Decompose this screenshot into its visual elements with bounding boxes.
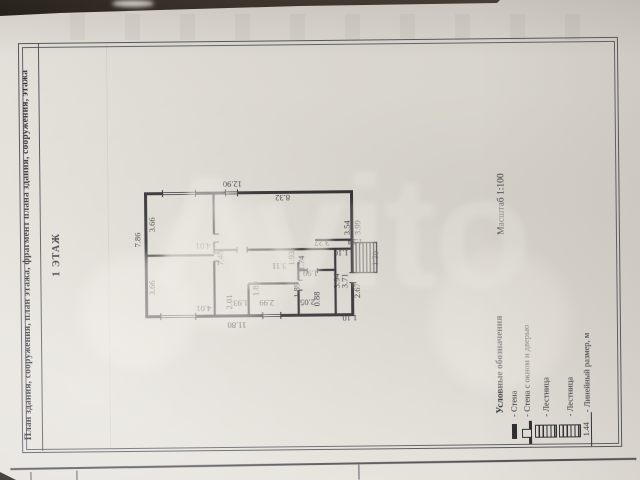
legend-items: - Стена- Стена с окном и дверью- Лестниц… bbox=[507, 281, 592, 447]
floor-plan-drawing bbox=[129, 184, 391, 337]
inner-walls bbox=[146, 192, 353, 317]
legend-item-label: - Лестница bbox=[564, 377, 574, 417]
legend-item: 1.44- Линейный размер, м bbox=[580, 281, 592, 446]
legend: Условные обозначения - Стена- Стена с ок… bbox=[494, 281, 621, 447]
stairs-icon bbox=[558, 416, 580, 446]
next-section-border bbox=[10, 458, 636, 470]
legend-title: Условные обозначения bbox=[494, 282, 506, 447]
next-section-divider-a bbox=[76, 471, 77, 480]
wall-icon bbox=[511, 417, 516, 447]
legend-item: - Стена bbox=[507, 282, 519, 447]
opening-ticks bbox=[159, 188, 356, 320]
legend-item-label: - Стена bbox=[509, 391, 519, 417]
legend-item-label: - Линейный размер, м bbox=[581, 333, 592, 412]
stairs bbox=[353, 242, 377, 272]
linear-dimension-icon: 1.44 bbox=[582, 412, 592, 446]
photo-canvas: План здания, сооружения, план этажа, фра… bbox=[0, 0, 640, 480]
stairs-icon bbox=[535, 417, 557, 447]
legend-item-label: - Стена с окном и дверью bbox=[521, 325, 532, 417]
legend-item: - Лестница bbox=[557, 281, 581, 446]
wall-window-door-icon bbox=[520, 417, 533, 447]
legend-item-label: - Лестница bbox=[540, 377, 550, 417]
legend-item: - Лестница bbox=[533, 282, 557, 447]
legend-item: - Стена с окном и дверью bbox=[519, 282, 534, 447]
next-section-left-border bbox=[30, 472, 31, 480]
floor-label: 1 ЭТАЖ bbox=[50, 225, 63, 285]
next-section-divider-b bbox=[358, 465, 359, 480]
scale-label: Масштаб 1:100 bbox=[495, 162, 508, 246]
document-sheet: План здания, сооружения, план этажа, фра… bbox=[0, 0, 640, 480]
